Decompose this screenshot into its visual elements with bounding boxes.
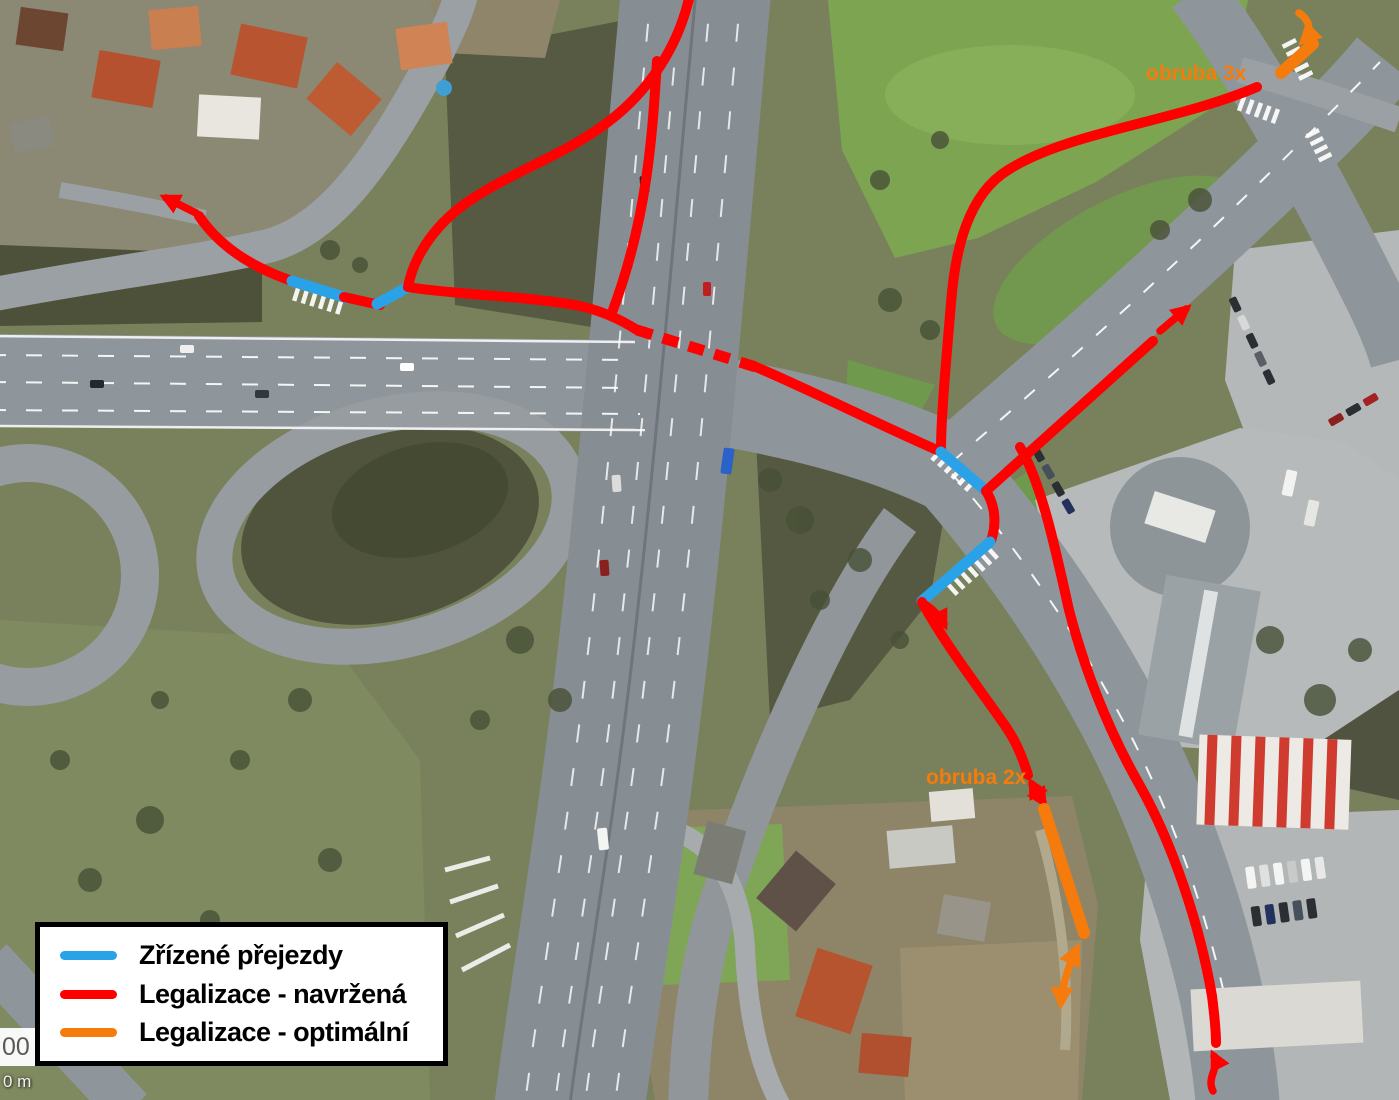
legend: Zřízené přejezdy Legalizace - navržená L… [35,922,448,1066]
map-viewport: obruba 3x obruba 2x 00 0 m Zřízené přeje… [0,0,1399,1100]
legend-item-legalizace-navrzena: Legalizace - navržená [60,981,437,1008]
legend-label-zrizene-prejezdy: Zřízené přejezdy [139,942,343,969]
obruba-2x-label: obruba 2x [926,766,1027,789]
legend-item-legalizace-optimalni: Legalizace - optimální [60,1019,437,1046]
legend-swatch-orange [60,1028,117,1037]
obruba-3x-label: obruba 3x [1146,62,1247,85]
map-scale-number: 00 [0,1035,30,1060]
map-scale-unit: 0 m [3,1072,31,1092]
legend-swatch-red [60,990,117,999]
legend-item-zrizene-prejezdy: Zřízené přejezdy [60,942,437,969]
legend-label-legalizace-optimalni: Legalizace - optimální [139,1019,409,1046]
legend-swatch-blue [60,951,117,960]
legend-label-legalizace-navrzena: Legalizace - navržená [139,981,406,1008]
